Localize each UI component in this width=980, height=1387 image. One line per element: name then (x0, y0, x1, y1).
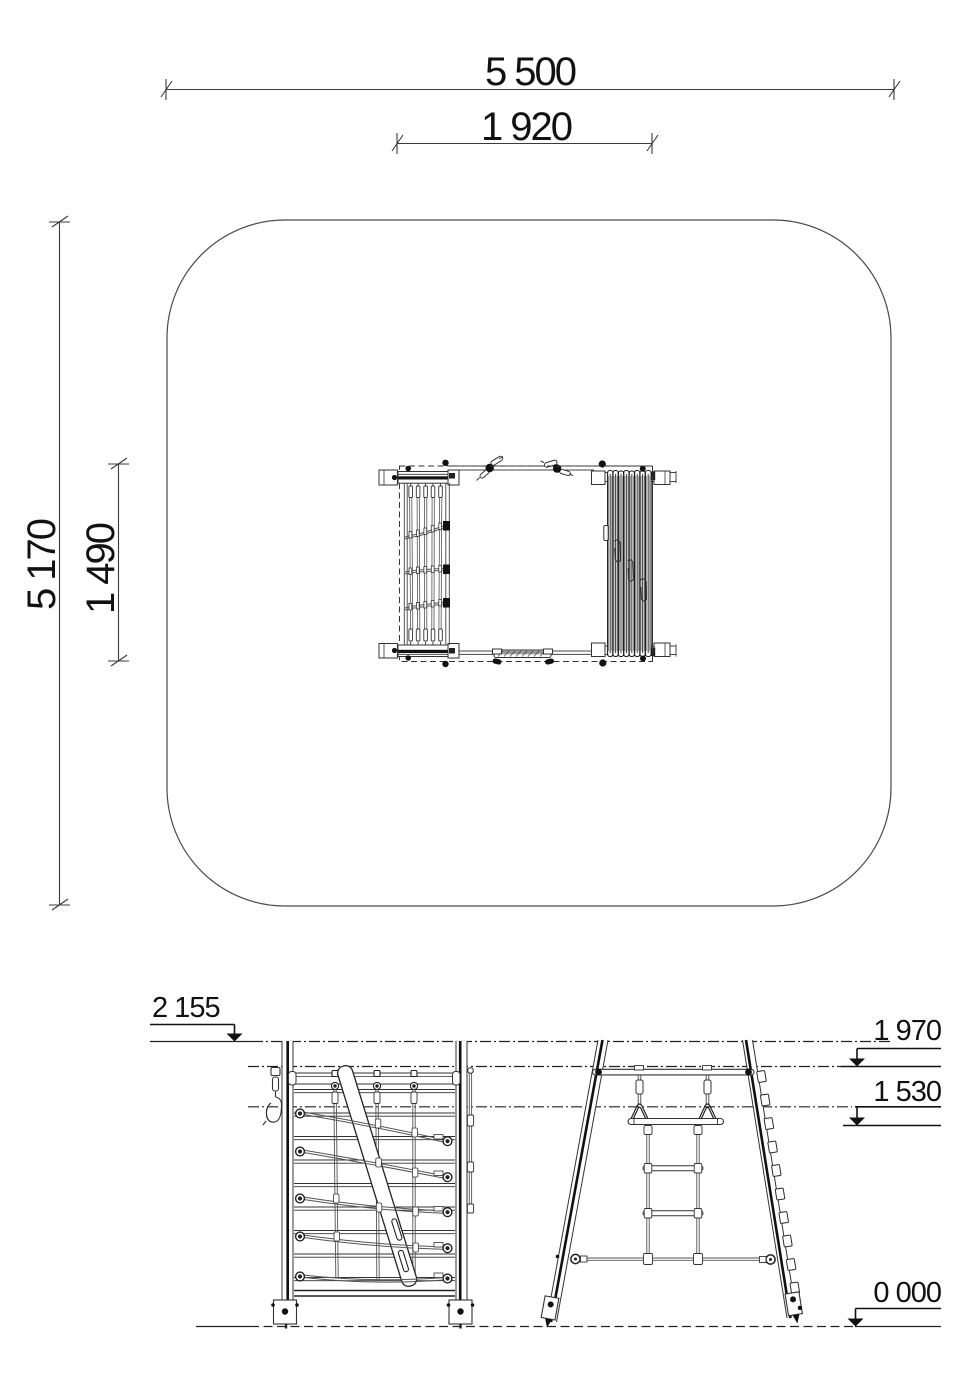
svg-text:5 170: 5 170 (20, 519, 64, 610)
svg-text:1 490: 1 490 (79, 523, 123, 614)
svg-text:5 500: 5 500 (485, 50, 576, 94)
svg-text:1 970: 1 970 (873, 1015, 941, 1047)
svg-text:1 920: 1 920 (481, 105, 572, 149)
svg-text:1 530: 1 530 (873, 1076, 941, 1108)
svg-text:0 000: 0 000 (873, 1277, 941, 1309)
svg-text:2 155: 2 155 (152, 992, 220, 1024)
